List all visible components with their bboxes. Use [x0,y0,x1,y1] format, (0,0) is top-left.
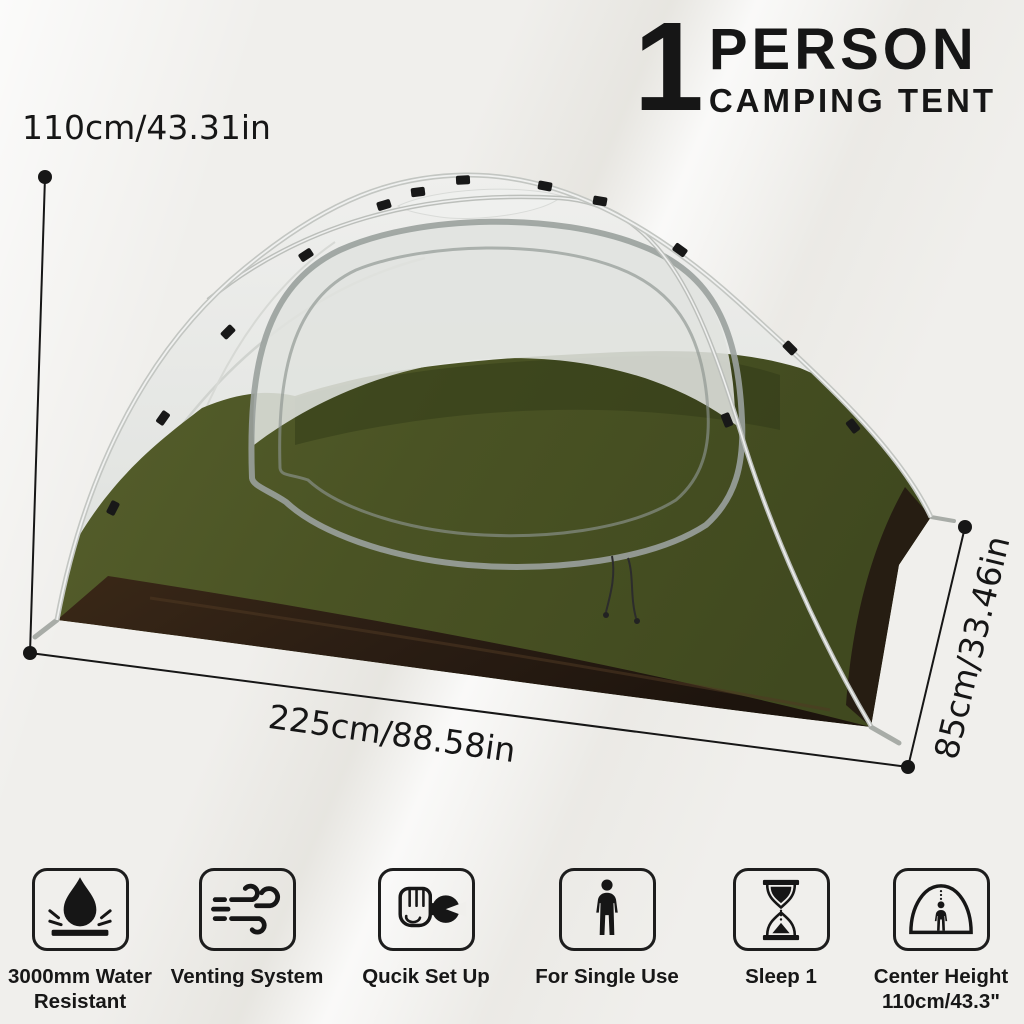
product-title: 1 PERSON CAMPING TENT [634,14,996,120]
zipper-toggle [634,618,640,624]
product-infographic: 1 PERSON CAMPING TENT 110cm/43.31in 225c… [0,0,1024,1024]
venting-system-icon [199,868,296,951]
sleep-capacity-icon [733,868,830,951]
person-count: 1 [634,14,699,120]
feature-single-use: For Single Use [527,868,687,989]
feature-center-height: Center Height110cm/43.3" [861,868,1021,1014]
title-subtitle: CAMPING TENT [709,82,996,120]
feature-label: Sleep 1 [701,964,861,989]
single-use-icon [559,868,656,951]
quick-set-up-icon [378,868,475,951]
feature-venting-system: Venting System [167,868,327,989]
feature-label: Center Height110cm/43.3" [861,964,1021,1014]
feature-water-resistant: 3000mm WaterResistant [0,868,160,1014]
center-height-icon [893,868,990,951]
feature-sleep-capacity: Sleep 1 [701,868,861,989]
feature-label: 3000mm WaterResistant [0,964,160,1014]
zipper-toggle [603,612,609,618]
water-resistant-icon [32,868,129,951]
title-word: PERSON [709,20,996,79]
feature-label: For Single Use [527,964,687,989]
feature-label: Venting System [167,964,327,989]
dimension-line-height [30,177,45,653]
feature-label: Qucik Set Up [346,964,506,989]
feature-quick-set-up: Qucik Set Up [346,868,506,989]
height-dimension-label: 110cm/43.31in [22,108,271,147]
tent [35,175,954,743]
